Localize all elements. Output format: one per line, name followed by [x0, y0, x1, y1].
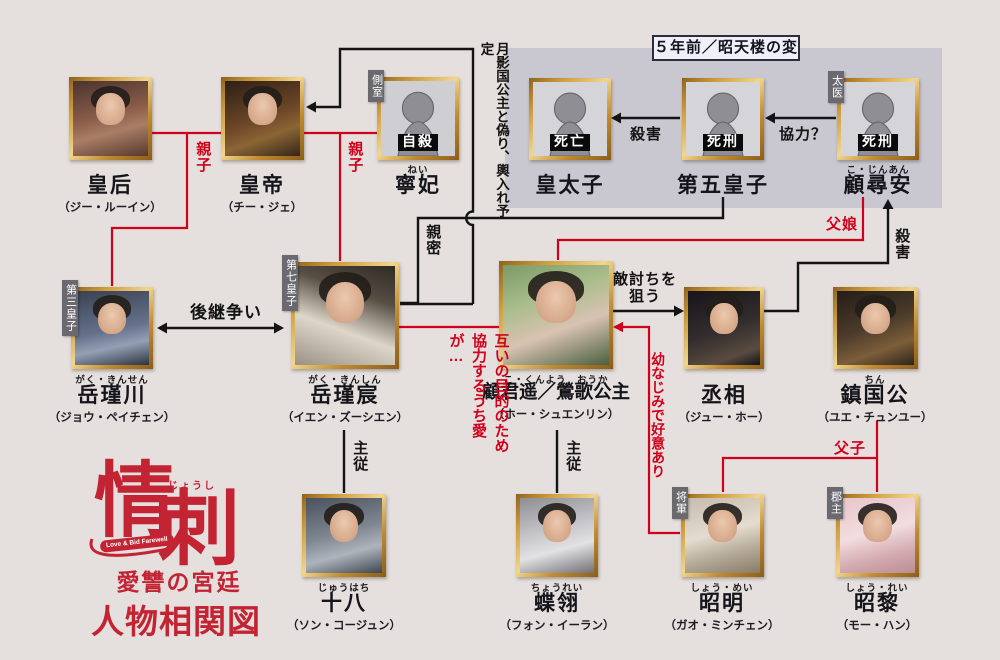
relationship-chart: ５年前／昭天楼の変	[0, 0, 1000, 660]
photo-juuhachi	[306, 498, 382, 573]
photo-shourei	[840, 498, 915, 573]
photo-empress	[73, 81, 148, 156]
photo-chourei	[520, 498, 594, 573]
person-name: 岳瑾川	[12, 384, 212, 406]
label-murder-right: 殺害	[893, 228, 910, 260]
name-juuhachi: じゅうはち 十八 （ソン・コージュン）	[244, 580, 444, 633]
label-parent-child-right: 親子	[346, 141, 363, 173]
show-logo: 情 刺 じょうし Love & Bid Farewell 愛讐の宮廷 人物相関図	[80, 455, 270, 650]
actor-name: （ユエ・チュンユー）	[775, 409, 975, 425]
role-tag-neihi: 側室	[368, 70, 384, 102]
portrait-chancellor	[684, 287, 764, 369]
portrait-gakukinsen: 第三皇子	[71, 287, 153, 369]
name-kojin-an: こ・じんあん 顧尋安	[778, 162, 978, 196]
status-badge-kojin-an: 死刑	[858, 134, 898, 151]
actor-name: （ソン・コージュン）	[244, 617, 444, 633]
actor-name: （モー・ハン）	[777, 617, 977, 633]
label-murder-flashback: 殺害	[630, 126, 662, 143]
name-chinkokukou: ちん 鎮国公 （ユエ・チュンユー）	[775, 372, 975, 425]
portrait-gakukinshin: 第七皇子	[291, 262, 399, 369]
logo-caption: 人物相関図	[86, 595, 266, 643]
portrait-shoumei: 将軍	[681, 494, 764, 577]
label-cooperation-question: 協力？	[779, 126, 827, 143]
label-revenge-target: 敵討ちを狙う	[613, 271, 677, 306]
status-badge-neihi: 自殺	[398, 134, 438, 151]
portrait-fifth-prince: 死刑	[682, 78, 764, 160]
role-tag-shoumei: 将軍	[672, 487, 688, 519]
role-tag-shourei: 郡主	[827, 487, 843, 519]
name-shourei: しょう・れい 昭黎 （モー・ハン）	[777, 580, 977, 633]
portrait-kokunyou	[499, 261, 613, 369]
label-father-son: 父子	[834, 440, 866, 457]
label-parent-child-left: 親子	[194, 141, 211, 173]
name-gakukinshin: がく・きんしん 岳瑾宸 （イエン・ズーシエン）	[245, 372, 445, 425]
red-arrowheads	[613, 322, 623, 332]
label-moon-kingdom-note: 月影国公主と偽り、輿入れ予定	[478, 42, 509, 222]
label-cooperation-love: 互いの目的のため協力するうち愛が…	[444, 333, 512, 465]
portrait-shourei: 郡主	[836, 494, 919, 577]
label-father-daughter: 父娘	[826, 216, 858, 233]
photo-gakukinsen	[75, 291, 149, 365]
actor-name: （チー・ジェ）	[162, 199, 362, 215]
portrait-empress	[69, 77, 152, 160]
portrait-crown-prince: 死亡	[529, 78, 611, 160]
status-badge-fifth-prince: 死刑	[703, 134, 743, 151]
label-master-servant-right: 主従	[564, 440, 581, 472]
portrait-chourei	[516, 494, 598, 577]
logo-subtitle: 愛讐の宮廷	[104, 563, 254, 597]
role-tag-gakukinsen: 第三皇子	[62, 280, 78, 336]
photo-emperor	[225, 81, 300, 156]
logo-furigana: じょうし	[168, 477, 216, 492]
status-badge-crown-prince: 死亡	[550, 134, 590, 151]
portrait-kojin-an: 太医 死刑	[837, 78, 919, 160]
label-childhood-friend: 幼なじみで好意あり	[650, 352, 666, 482]
portrait-chinkokukou	[833, 287, 918, 369]
person-name: 鎮国公	[775, 384, 975, 406]
actor-name: （ジョウ・ペイチェン）	[12, 409, 212, 425]
photo-shoumei	[685, 498, 760, 573]
person-name: 十八	[244, 592, 444, 614]
photo-gakukinshin	[295, 266, 395, 365]
label-master-servant-left: 主従	[351, 440, 368, 472]
label-succession-fight: 後継争い	[190, 303, 262, 323]
person-name: 昭黎	[777, 592, 977, 614]
actor-name: （イエン・ズーシエン）	[245, 409, 445, 425]
photo-chancellor	[688, 291, 760, 365]
photo-chinkokukou	[837, 291, 914, 365]
role-tag-gakukinshin: 第七皇子	[282, 255, 298, 311]
role-tag-kojin-an: 太医	[828, 71, 844, 103]
name-gakukinsen: がく・きんせん 岳瑾川 （ジョウ・ペイチェン）	[12, 372, 212, 425]
person-name: 岳瑾宸	[245, 384, 445, 406]
photo-kokunyou	[503, 265, 609, 365]
label-close-bond: 親密	[424, 224, 441, 256]
portrait-juuhachi	[302, 494, 386, 577]
flashback-panel-title: ５年前／昭天楼の変	[652, 35, 800, 61]
portrait-emperor	[221, 77, 304, 160]
portrait-neihi: 側室 自殺	[377, 77, 459, 160]
person-name: 顧尋安	[778, 174, 978, 196]
